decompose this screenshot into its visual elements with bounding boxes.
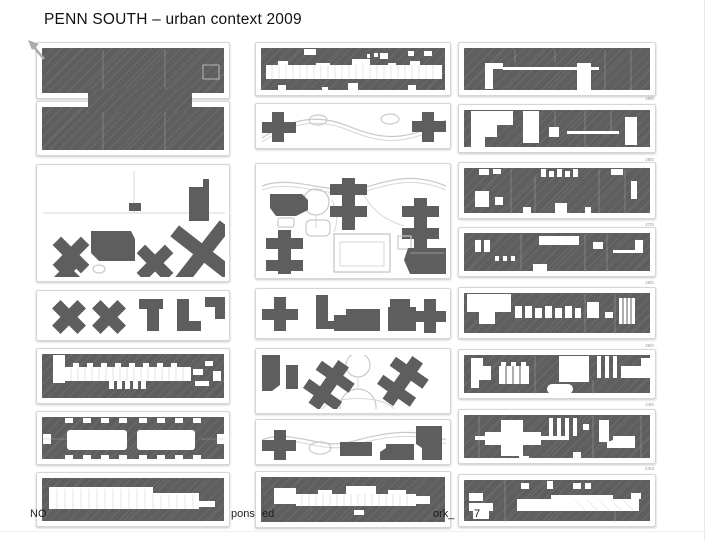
figure-ground-drawing [465, 169, 651, 214]
page-title: PENN SOUTH – urban context 2009 [44, 11, 302, 29]
footer-fragment: NO [30, 508, 47, 520]
street-label-27th: 27th [645, 222, 654, 227]
street-label-25th: 25th [645, 343, 654, 348]
footer-fragment: pons [231, 508, 255, 520]
map-panel-middle-2 [255, 103, 451, 149]
street-label-29th: 29th [645, 96, 654, 101]
figure-ground-drawing [262, 355, 446, 409]
figure-ground-drawing [262, 295, 446, 334]
figure-ground-drawing [262, 110, 446, 144]
map-panel-middle-4 [255, 288, 451, 339]
map-panel-left-7 [36, 472, 230, 527]
map-panel-right-6 [458, 349, 656, 399]
street-label-23rd: 23rd [645, 466, 654, 471]
figure-ground-drawing [43, 171, 225, 277]
footer-fragment: ed [262, 508, 274, 520]
map-panel-right-2 [458, 104, 656, 153]
figure-ground-drawing [43, 297, 225, 336]
slide-edge-line [704, 0, 705, 540]
figure-ground-drawing [43, 355, 225, 399]
north-arrow-icon [27, 39, 47, 61]
figure-ground-drawing [465, 294, 651, 334]
map-panel-left-4 [36, 290, 230, 341]
figure-ground-drawing [43, 49, 225, 94]
figure-ground-drawing [465, 234, 651, 272]
figure-ground-drawing [262, 170, 446, 274]
street-label-26th: 26th [645, 280, 654, 285]
map-panel-middle-7 [255, 471, 451, 528]
street-label-24th: 24th [645, 402, 654, 407]
figure-ground-drawing [43, 108, 225, 151]
map-panel-middle-5 [255, 348, 451, 414]
map-panel-middle-1 [255, 42, 451, 96]
figure-ground-drawing [262, 426, 446, 460]
figure-ground-drawing [465, 481, 651, 522]
figure-ground-drawing [465, 416, 651, 459]
map-panel-right-3 [458, 162, 656, 219]
map-panel-right-7 [458, 409, 656, 464]
figure-ground-drawing [262, 478, 446, 523]
map-panel-right-5 [458, 287, 656, 339]
map-panel-right-8 [458, 474, 656, 527]
building-bridge [88, 89, 192, 112]
figure-ground-drawing [465, 356, 651, 394]
figure-ground-drawing [43, 479, 225, 522]
figure-ground-drawing [465, 111, 651, 148]
footer-fragment: 7 [474, 508, 480, 520]
map-panel-left-3 [36, 164, 230, 282]
map-panel-left-5 [36, 348, 230, 404]
map-panel-middle-6 [255, 419, 451, 465]
street-label-28th: 28th [645, 157, 654, 162]
map-panel-middle-3 [255, 163, 451, 279]
figure-ground-drawing [262, 49, 446, 91]
presentation-slide: PENN SOUTH – urban context 2009 [0, 0, 720, 540]
map-panel-right-1 [458, 42, 656, 96]
figure-ground-drawing [43, 418, 225, 460]
footer-fragment: ork_ [433, 508, 454, 520]
slide-edge-line [0, 531, 706, 532]
map-panel-left-6 [36, 411, 230, 465]
figure-ground-drawing [465, 49, 651, 91]
map-panel-right-4 [458, 227, 656, 277]
